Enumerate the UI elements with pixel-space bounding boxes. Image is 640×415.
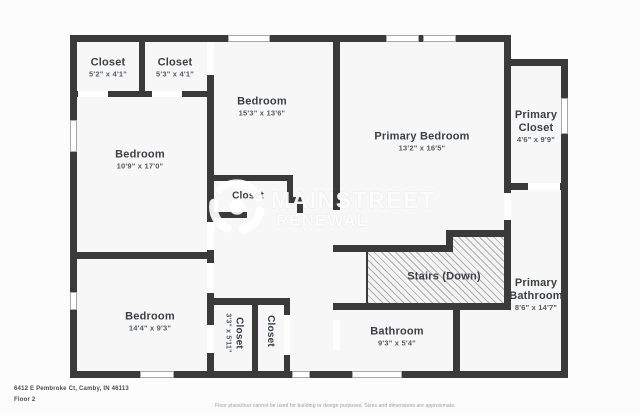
door-opening: [504, 193, 511, 220]
wall: [207, 175, 293, 181]
room-label-mid-closet: Closet: [232, 190, 264, 203]
room-name: Closet: [89, 57, 127, 70]
window: [423, 35, 456, 42]
wall: [70, 252, 214, 259]
wall: [333, 35, 340, 210]
room-label-bedroom-left: Bedroom 10'9" x 17'0": [115, 149, 165, 172]
room-label-primary-bathroom: Primary Bathroom 8'6" x 14'7": [505, 277, 567, 313]
door-opening: [152, 91, 182, 97]
window: [140, 371, 174, 378]
room-dims: 3'3" x 5'11": [224, 313, 233, 352]
room-label-closet-c: Closet 3'3" x 5'11": [224, 313, 245, 352]
room-label-bedroom-top: Bedroom 15'3" x 13'6": [237, 96, 287, 119]
wall: [252, 298, 258, 378]
room-label-primary-bedroom: Primary Bedroom 13'2" x 16'5": [374, 131, 469, 154]
window: [386, 35, 419, 42]
door-opening: [284, 315, 290, 355]
room-name: Primary Bathroom: [505, 277, 567, 303]
window: [292, 371, 310, 378]
door-opening: [207, 42, 214, 75]
wall: [453, 303, 460, 378]
room-label-closet-a: Closet 5'2" x 4'1": [89, 57, 127, 80]
room-dims: 9'3" x 5'4": [370, 339, 424, 349]
room-label-stairs-down: Stairs (Down): [407, 271, 481, 284]
room-dims: 5'3" x 4'1": [156, 70, 194, 80]
room-label-closet-d: Closet: [264, 315, 276, 347]
door-opening: [333, 320, 340, 350]
room-dims: 15'3" x 13'6": [237, 109, 287, 119]
room-name: Bedroom: [237, 96, 287, 109]
window: [70, 292, 77, 310]
room-name: Bedroom: [115, 149, 165, 162]
window: [352, 371, 402, 378]
room-label-closet-b: Closet 5'3" x 4'1": [156, 57, 194, 80]
wall: [333, 303, 511, 310]
room-name: Closet: [264, 315, 276, 347]
wall: [504, 35, 511, 310]
room-dims: 10'9" x 17'0": [115, 162, 165, 172]
wall: [70, 35, 77, 378]
wall: [207, 298, 290, 305]
room-name: Closet: [156, 57, 194, 70]
room-floor: [504, 59, 568, 378]
door-opening: [207, 263, 214, 293]
room-name: Closet: [232, 190, 264, 203]
room-dims: 14'4" x 9'3": [125, 324, 175, 334]
room-name: Primary Closet: [505, 109, 567, 135]
room-label-bathroom: Bathroom 9'3" x 5'4": [370, 326, 424, 349]
room-dims: 8'6" x 14'7": [505, 303, 567, 313]
door-opening: [207, 222, 214, 250]
room-label-bedroom-bottom: Bedroom 14'4" x 9'3": [125, 311, 175, 334]
room-dims: 5'2" x 4'1": [89, 70, 127, 80]
floor-plan-canvas: Closet 5'2" x 4'1" Closet 5'3" x 4'1" Be…: [0, 0, 640, 415]
window: [228, 35, 270, 42]
wall: [333, 245, 453, 252]
room-dims: 13'2" x 16'5": [374, 144, 469, 154]
room-dims: 4'6" x 9'9": [505, 135, 567, 145]
footer-floor-label: Floor 2: [14, 397, 35, 403]
wall: [446, 230, 510, 237]
room-label-primary-closet: Primary Closet 4'6" x 9'9": [505, 109, 567, 145]
door-opening: [78, 91, 108, 97]
wall: [139, 42, 145, 91]
wall: [504, 59, 568, 66]
room-name: Closet: [233, 313, 245, 352]
room-name: Stairs (Down): [407, 271, 481, 284]
room-name: Bedroom: [125, 311, 175, 324]
footer-disclaimer: Floor plans/tour cannot be used for buil…: [215, 403, 456, 409]
room-name: Bathroom: [370, 326, 424, 339]
door-opening: [528, 183, 560, 190]
door-opening: [207, 325, 214, 353]
room-name: Primary Bedroom: [374, 131, 469, 144]
window: [70, 120, 77, 152]
footer-address: 6412 E Pembroke Ct, Camby, IN 46113: [14, 386, 129, 392]
